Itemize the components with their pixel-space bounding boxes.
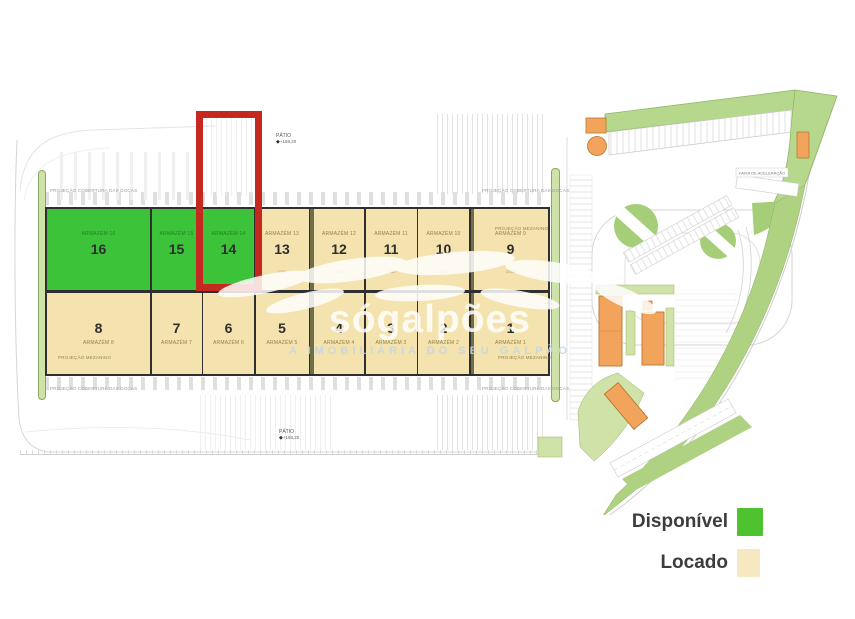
unit-label: ARMAZÉM 10 [418, 231, 469, 237]
warehouse-row-top: ARMAZÉM 1616ARMAZÉM 1515ARMAZÉM 1414ARMA… [47, 209, 548, 290]
unit-dimension: 2250 [256, 269, 309, 274]
mezzanine-label-unit8: PROJEÇÃO MEZANINO [58, 355, 111, 360]
unit-3: ARMAZÉM 33 [366, 293, 417, 374]
unit-10: ARMAZÉM 10102250 [418, 209, 469, 290]
unit-number: 10 [418, 241, 469, 257]
unit-label: ARMAZÉM 5 [256, 340, 309, 346]
unit-label: ARMAZÉM 13 [256, 231, 309, 237]
green-strip-buildings-east [666, 308, 674, 366]
legend-row-available: Disponível [580, 508, 763, 536]
unit-label: ARMAZÉM 16 [47, 231, 150, 237]
unit-label: ARMAZÉM 15 [152, 231, 202, 237]
unit-number: 5 [256, 320, 309, 336]
unit-number: 7 [152, 320, 202, 336]
unit-dimension: 2250 [314, 269, 364, 274]
support-building-annex [643, 301, 652, 310]
docks-label-top-left: PROJEÇÃO COBERTURA DAS DOCAS [50, 188, 137, 193]
unit-dimension: 2250 [366, 269, 417, 274]
patio-label-top: PÁTIO ◆+168,20 [276, 133, 296, 145]
unit-16: ARMAZÉM 1616 [47, 209, 150, 290]
unit-label: ARMAZÉM 3 [366, 340, 417, 346]
unit-8: ARMAZÉM 88 [47, 293, 150, 374]
green-strip-buildings-north [596, 285, 674, 294]
unit-6: ARMAZÉM 66 [203, 293, 254, 374]
unit-number: 13 [256, 241, 309, 257]
unit-11: ARMAZÉM 11112250 [366, 209, 417, 290]
gatehouse-northeast [797, 132, 809, 158]
docks-label-bottom-right: PROJEÇÃO COBERTURA DAS DOCAS [482, 386, 569, 391]
water-tank [588, 137, 607, 156]
unit-15: ARMAZÉM 1515 [152, 209, 202, 290]
unit-13: ARMAZÉM 13132250 [256, 209, 309, 290]
warehouse-block: ARMAZÉM 1616ARMAZÉM 1515ARMAZÉM 1414ARMA… [45, 207, 550, 376]
docks-label-top-right: PROJEÇÃO COBERTURA DAS DOCAS [482, 188, 569, 193]
unit-number: 16 [47, 241, 150, 257]
unit-number: 2 [418, 320, 469, 336]
west-parking-column [570, 175, 592, 420]
unit-number: 11 [366, 241, 417, 257]
unit-5: ARMAZÉM 55 [256, 293, 309, 374]
unit-number: 3 [366, 320, 417, 336]
unit-label: ARMAZÉM 12 [314, 231, 364, 237]
highlight-outline-unit-14 [196, 111, 262, 291]
legend-swatch-leased [737, 549, 760, 577]
unit-label: ARMAZÉM 7 [152, 340, 202, 346]
green-patch-southwest [538, 437, 562, 457]
unit-label: ARMAZÉM 11 [366, 231, 417, 237]
legend-swatch-available [737, 508, 763, 536]
access-yard-plan: FAIXA DE ACELERAÇÃO [530, 75, 855, 515]
unit-label: ARMAZÉM 8 [47, 340, 150, 346]
unit-label: ARMAZÉM 4 [314, 340, 364, 346]
unit-12: ARMAZÉM 12122250 [314, 209, 364, 290]
legend-row-leased: Locado [580, 549, 763, 577]
patio-label-bottom: PÁTIO ◆+168,25 [279, 429, 299, 441]
warehouse-row-bottom: ARMAZÉM 88ARMAZÉM 77ARMAZÉM 66ARMAZÉM 55… [47, 293, 548, 374]
support-building-2 [642, 312, 664, 365]
legend-label-leased: Locado [580, 552, 728, 574]
docks-label-bottom-left: PROJEÇÃO COBERTURA DAS DOCAS [50, 386, 137, 391]
unit-number: 8 [47, 320, 150, 336]
unit-number: 4 [314, 320, 364, 336]
site-plan: ARMAZÉM 1616ARMAZÉM 1515ARMAZÉM 1414ARMA… [0, 0, 855, 619]
unit-label: ARMAZÉM 6 [203, 340, 254, 346]
unit-7: ARMAZÉM 77 [152, 293, 202, 374]
unit-4: ARMAZÉM 44 [314, 293, 364, 374]
accel-label: FAIXA DE ACELERAÇÃO [739, 171, 785, 176]
mezzanine-label-unit1: PROJEÇÃO MEZANINO [498, 355, 551, 360]
green-strip-buildings-mid [626, 311, 635, 355]
unit-dimension: 2250 [418, 269, 469, 274]
legend: Disponível Locado [580, 508, 763, 590]
mezzanine-label-unit9: PROJEÇÃO MEZANINO [495, 226, 548, 231]
legend-label-available: Disponível [580, 511, 728, 533]
unit-number: 15 [152, 241, 202, 257]
unit-2: ARMAZÉM 22 [418, 293, 469, 374]
unit-number: 6 [203, 320, 254, 336]
utility-structure [586, 118, 606, 133]
unit-number: 12 [314, 241, 364, 257]
unit-label: ARMAZÉM 2 [418, 340, 469, 346]
